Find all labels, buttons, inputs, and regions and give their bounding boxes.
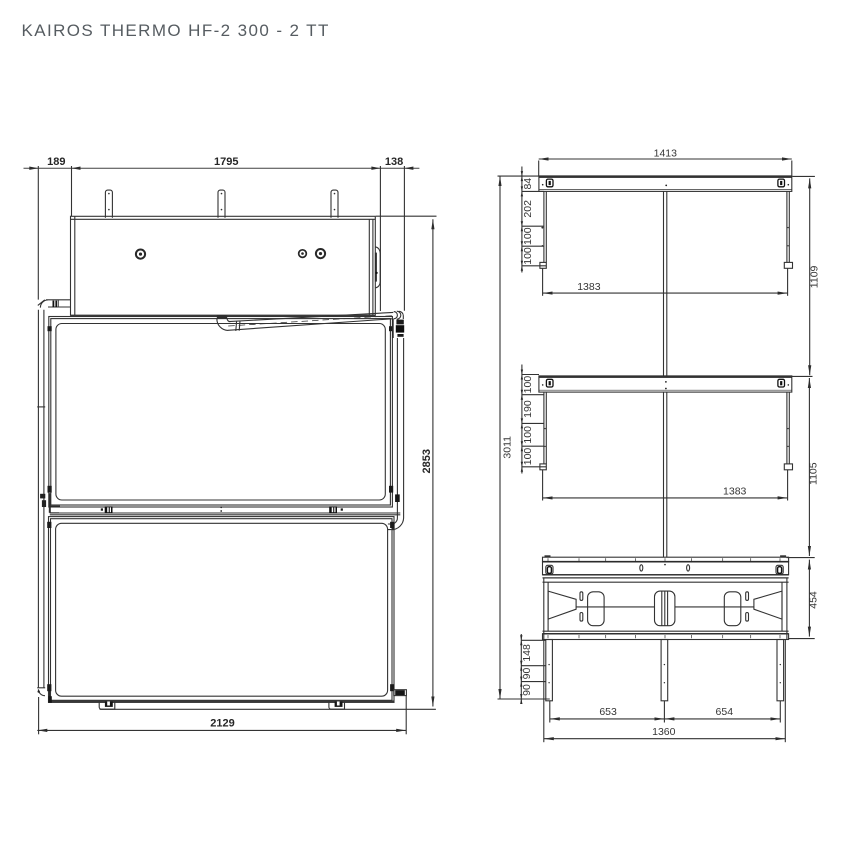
svg-text:189: 189 [47, 156, 65, 168]
svg-text:84: 84 [522, 178, 534, 190]
svg-text:KAIROS THERMO HF-2 300 - 2 TT: KAIROS THERMO HF-2 300 - 2 TT [22, 21, 330, 40]
svg-text:1105: 1105 [807, 462, 819, 485]
svg-text:653: 653 [599, 706, 617, 718]
svg-text:2129: 2129 [210, 718, 234, 730]
svg-text:100: 100 [522, 426, 534, 444]
svg-text:190: 190 [522, 400, 534, 418]
svg-text:1360: 1360 [652, 726, 676, 738]
svg-text:1795: 1795 [214, 156, 238, 168]
svg-text:148: 148 [521, 644, 533, 662]
svg-text:90: 90 [521, 668, 533, 680]
svg-text:454: 454 [807, 591, 819, 609]
svg-text:654: 654 [716, 706, 734, 718]
svg-text:202: 202 [522, 200, 534, 218]
svg-text:138: 138 [385, 156, 403, 168]
svg-text:100: 100 [522, 448, 534, 466]
svg-text:100: 100 [522, 376, 534, 394]
svg-text:2853: 2853 [421, 449, 433, 473]
svg-text:1413: 1413 [654, 148, 678, 160]
svg-text:100: 100 [522, 247, 534, 265]
svg-text:1109: 1109 [808, 265, 820, 288]
svg-text:1383: 1383 [577, 281, 601, 293]
svg-text:90: 90 [521, 684, 533, 696]
svg-text:100: 100 [522, 227, 534, 245]
svg-text:3011: 3011 [501, 436, 513, 459]
svg-text:1383: 1383 [723, 486, 747, 498]
